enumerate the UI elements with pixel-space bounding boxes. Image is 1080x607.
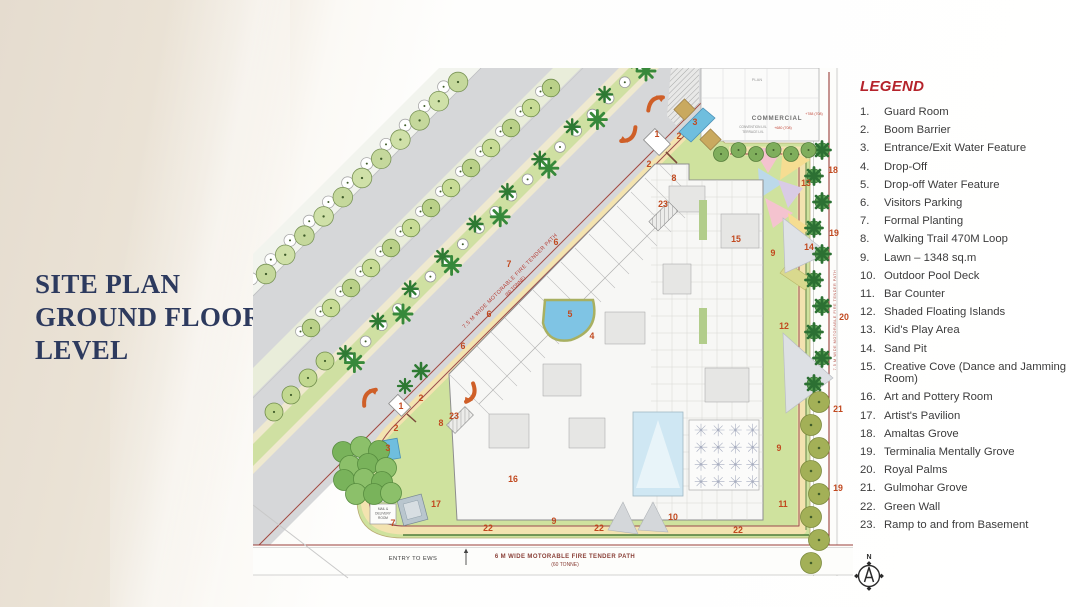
plan-marker-7: 7 — [391, 518, 396, 528]
plan-marker-9: 9 — [771, 248, 776, 258]
mail-label-3: ROOM — [378, 516, 388, 520]
legend-panel: LEGEND 1.Guard Room2.Boom Barrier3.Entra… — [860, 78, 1074, 537]
plan-marker-19: 19 — [829, 228, 839, 238]
legend-item: 7.Formal Planting — [860, 215, 1074, 227]
legend-item: 5.Drop-off Water Feature — [860, 179, 1074, 191]
page-title: SITE PLAN GROUND FLOOR LEVEL — [35, 268, 263, 367]
north-label: N — [866, 554, 871, 561]
plan-marker-3: 3 — [693, 117, 698, 127]
plan-marker-1: 1 — [655, 129, 660, 139]
terrace-label: TERRACE LVL — [742, 130, 764, 134]
legend-item: 2.Boom Barrier — [860, 124, 1074, 136]
plan-marker-17: 17 — [431, 499, 441, 509]
plan-marker-2: 2 — [647, 159, 652, 169]
legend-item: 4.Drop-Off — [860, 161, 1074, 173]
plan-marker-9: 9 — [777, 443, 782, 453]
commercial-label: COMMERCIAL — [752, 115, 803, 122]
legend-item: 1.Guard Room — [860, 106, 1074, 118]
plan-marker-2: 2 — [677, 131, 682, 141]
plan-marker-9: 9 — [552, 516, 557, 526]
plan-marker-14: 14 — [804, 242, 814, 252]
legend-item: 19.Terminalia Mentally Grove — [860, 446, 1074, 458]
legend-item: 8.Walking Trail 470M Loop — [860, 233, 1074, 245]
pool-deck — [689, 420, 759, 490]
plan-marker-10: 10 — [668, 512, 678, 522]
plan-marker-19: 19 — [833, 483, 843, 493]
plan-marker-22: 22 — [733, 525, 743, 535]
legend-item: 6.Visitors Parking — [860, 197, 1074, 209]
plan-marker-18: 18 — [828, 165, 838, 175]
plan-marker-15: 15 — [731, 234, 741, 244]
legend-list: 1.Guard Room2.Boom Barrier3.Entrance/Exi… — [860, 106, 1074, 531]
legend-item: 3.Entrance/Exit Water Feature — [860, 142, 1074, 154]
legend-item: 11.Bar Counter — [860, 288, 1074, 300]
legend-item: 14.Sand Pit — [860, 343, 1074, 355]
plan-marker-5: 5 — [568, 309, 573, 319]
legend-item: 15.Creative Cove (Dance and Jamming Room… — [860, 361, 1074, 386]
plan-marker-8: 8 — [672, 173, 677, 183]
elevation-label-1: +788 (708) — [805, 112, 822, 116]
fire-path-right-label: 7.5 M WIDE MOTORABLE FIRE TENDER PATH — [833, 270, 837, 371]
legend-item: 13.Kid's Play Area — [860, 324, 1074, 336]
plan-marker-2: 2 — [394, 423, 399, 433]
plan-marker-11: 11 — [778, 499, 787, 509]
plan-marker-23: 23 — [658, 199, 668, 209]
legend-item: 12.Shaded Floating Islands — [860, 306, 1074, 318]
plan-marker-12: 12 — [779, 321, 789, 331]
convention-label: CONVENTION LVL — [739, 125, 767, 129]
plan-marker-6: 6 — [461, 341, 466, 351]
mail-label-1: MAIL & — [378, 507, 389, 511]
mail-label-2: DELIVERY — [375, 512, 392, 516]
plan-marker-6: 6 — [554, 237, 559, 247]
legend-item: 20.Royal Palms — [860, 464, 1074, 476]
site-plan-drawing: COMMERCIAL CONVENTION LVL TERRACE LVL PL… — [253, 68, 853, 595]
site-plan: COMMERCIAL CONVENTION LVL TERRACE LVL PL… — [253, 68, 853, 595]
legend-item: 17.Artist's Pavilion — [860, 410, 1074, 422]
title-line-3: LEVEL — [35, 334, 263, 367]
legend-item: 16.Art and Pottery Room — [860, 391, 1074, 403]
legend-item: 18.Amaltas Grove — [860, 428, 1074, 440]
fire-path-bottom-label: 6 M WIDE MOTORABLE FIRE TENDER PATH — [495, 554, 635, 560]
compass-needle — [865, 568, 874, 583]
plan-marker-6: 6 — [487, 309, 492, 319]
legend-item: 21.Gulmohar Grove — [860, 482, 1074, 494]
legend-item: 23.Ramp to and from Basement — [860, 519, 1074, 531]
legend-item: 9.Lawn – 1348 sq.m — [860, 252, 1074, 264]
fire-path-bottom-label-2: (60 TONNE) — [551, 562, 579, 568]
plan-label: PLAN — [752, 77, 763, 82]
plan-marker-7: 7 — [507, 259, 512, 269]
plan-marker-1: 1 — [399, 401, 404, 411]
bottom-road — [253, 545, 853, 575]
north-compass: N — [849, 549, 889, 595]
plan-marker-23: 23 — [449, 411, 459, 421]
plan-marker-22: 22 — [483, 523, 493, 533]
plan-marker-21: 21 — [833, 404, 843, 414]
plan-marker-20: 20 — [839, 312, 849, 322]
legend-item: 10.Outdoor Pool Deck — [860, 270, 1074, 282]
legend-title: LEGEND — [860, 78, 1074, 95]
plan-marker-4: 4 — [590, 331, 595, 341]
entry-ews-label: ENTRY TO EWS — [389, 556, 438, 562]
plan-marker-8: 8 — [439, 418, 444, 428]
legend-item: 22.Green Wall — [860, 501, 1074, 513]
title-line-2: GROUND FLOOR — [35, 301, 263, 334]
svg-text:7.5 M WIDE MOTORABLE FIRE TEND: 7.5 M WIDE MOTORABLE FIRE TENDER PATH — [833, 270, 837, 371]
elevation-label-2: +680 (708) — [774, 126, 791, 130]
title-line-1: SITE PLAN — [35, 268, 263, 301]
plan-marker-2: 2 — [419, 393, 424, 403]
plan-marker-3: 3 — [386, 443, 391, 453]
plan-marker-16: 16 — [508, 474, 518, 484]
plan-marker-13: 13 — [801, 178, 811, 188]
plan-marker-22: 22 — [594, 523, 604, 533]
